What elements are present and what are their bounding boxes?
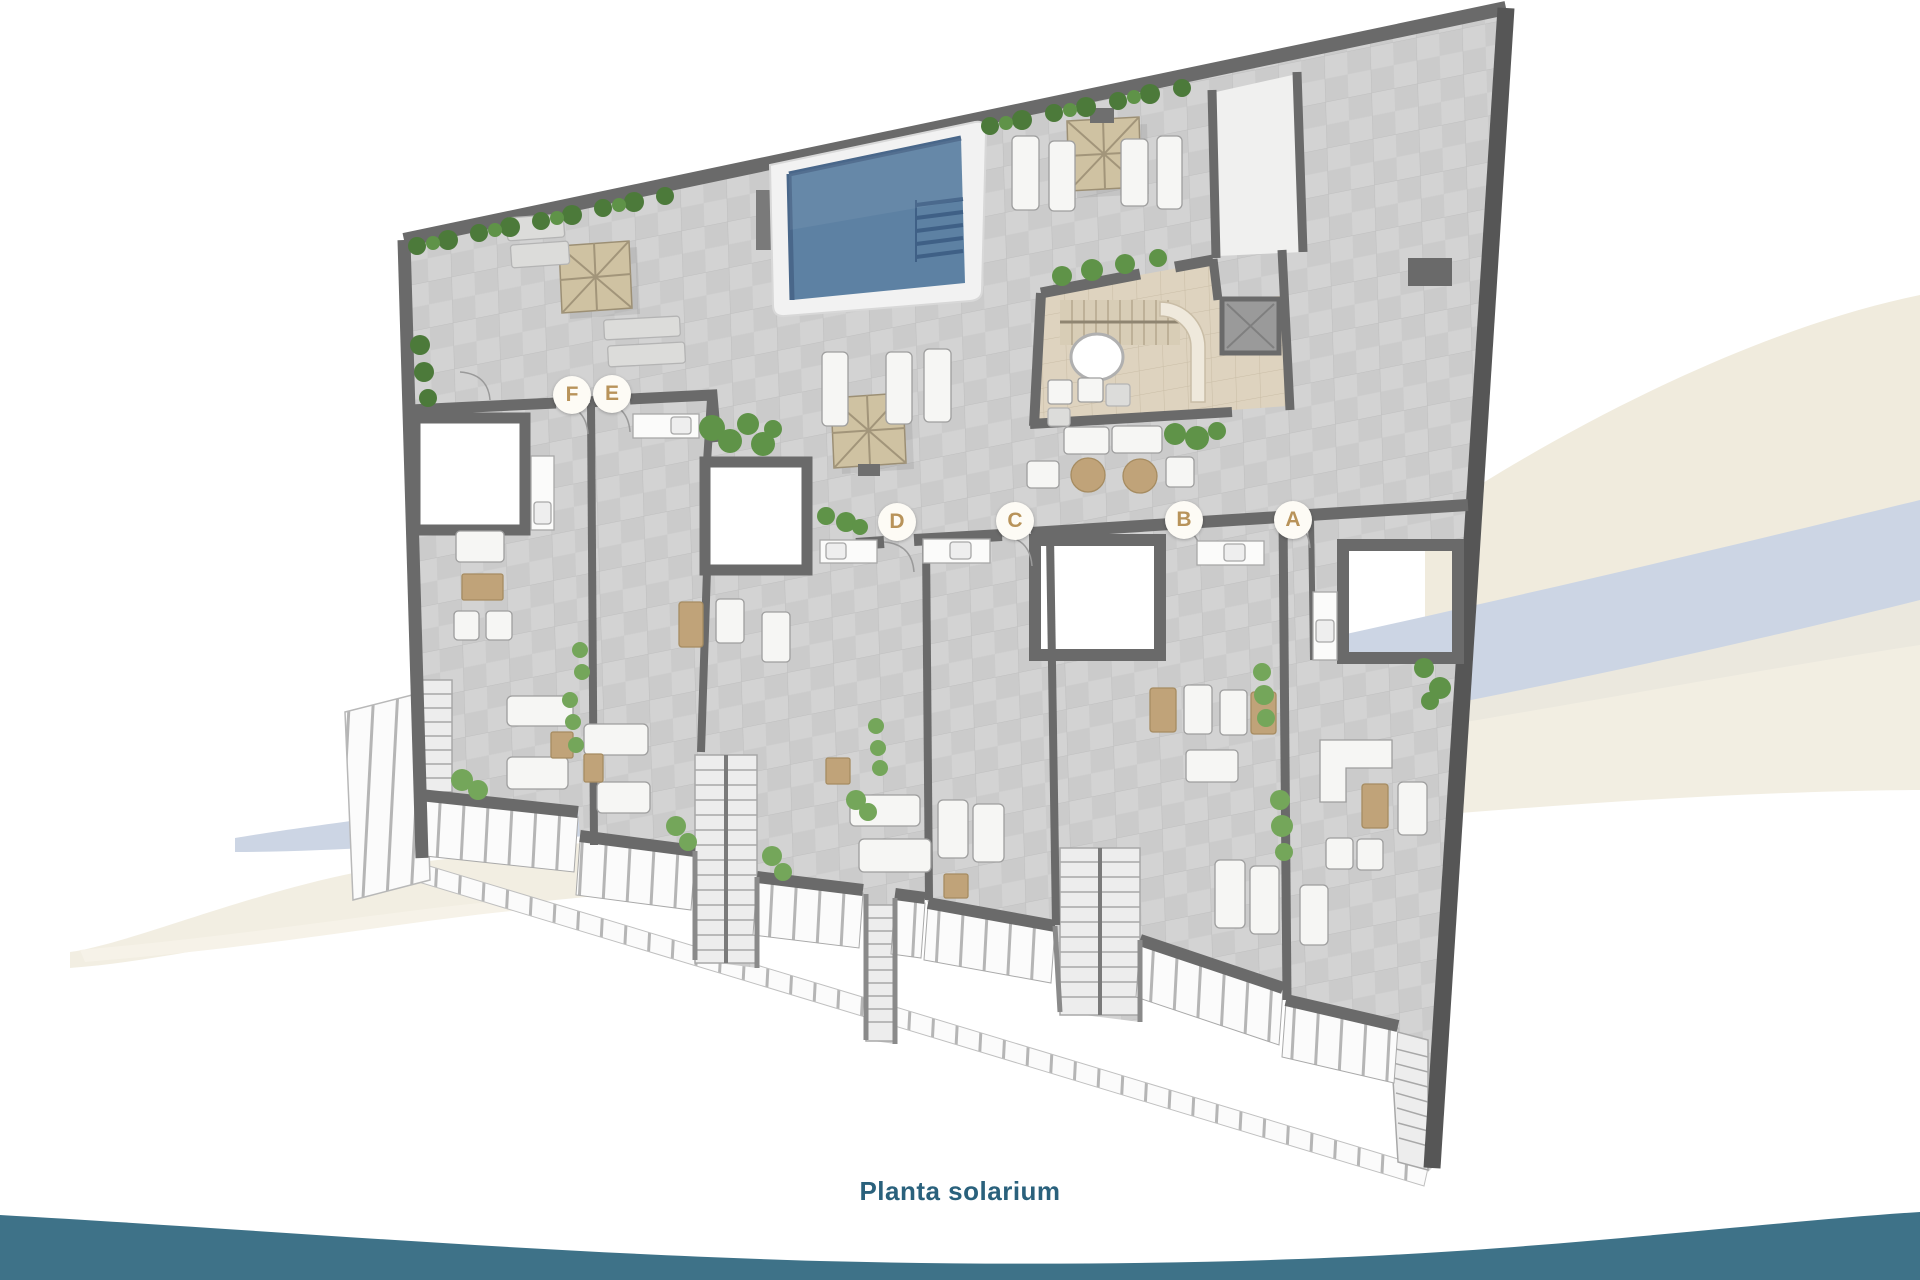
unit-badge-B[interactable]: B — [1165, 501, 1203, 539]
unit-badge-E[interactable]: E — [593, 375, 631, 413]
parasol-icon — [559, 241, 640, 319]
staircase-c-b — [1060, 848, 1140, 1015]
unit-badge-C[interactable]: C — [996, 502, 1034, 540]
page: FEDCBA Planta solarium — [0, 0, 1920, 1280]
staircase-e-d — [695, 755, 757, 963]
staircase-d-c — [866, 905, 895, 1041]
unit-badge-A[interactable]: A — [1274, 501, 1312, 539]
unit-badge-D[interactable]: D — [878, 503, 916, 541]
elevator — [1222, 299, 1279, 353]
plan-caption: Planta solarium — [0, 1176, 1920, 1207]
unit-badge-F[interactable]: F — [553, 376, 591, 414]
jacuzzi — [1071, 334, 1123, 380]
solarium-floorplan — [0, 0, 1920, 1280]
stair-hall — [1216, 74, 1303, 256]
